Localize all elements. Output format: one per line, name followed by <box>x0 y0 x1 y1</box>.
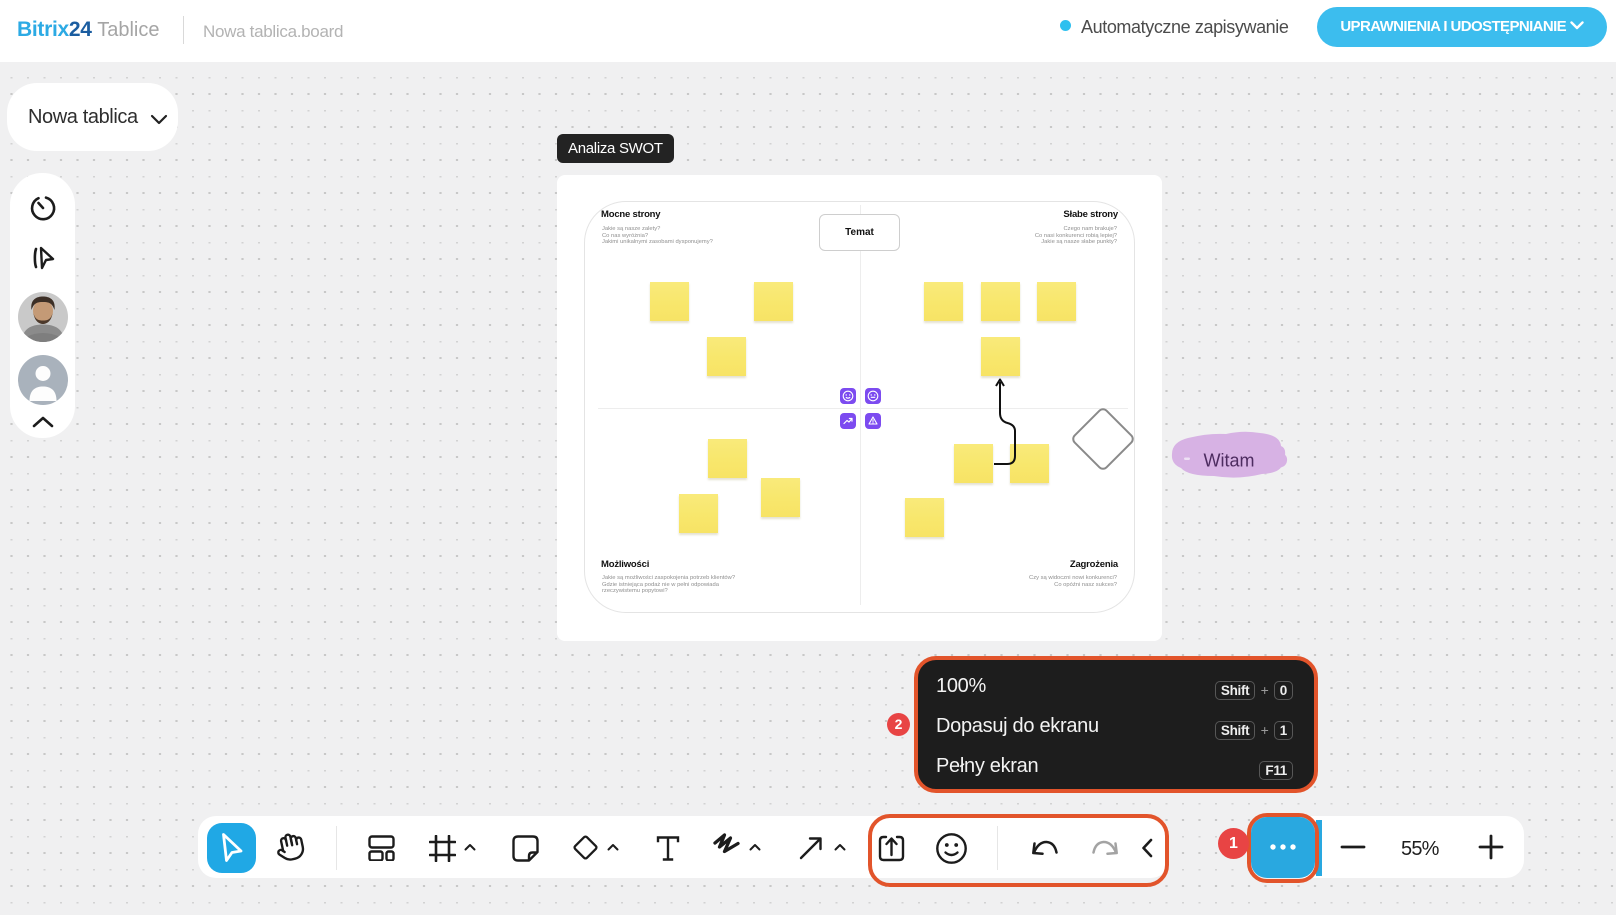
svg-text:Witam: Witam <box>1204 451 1255 471</box>
